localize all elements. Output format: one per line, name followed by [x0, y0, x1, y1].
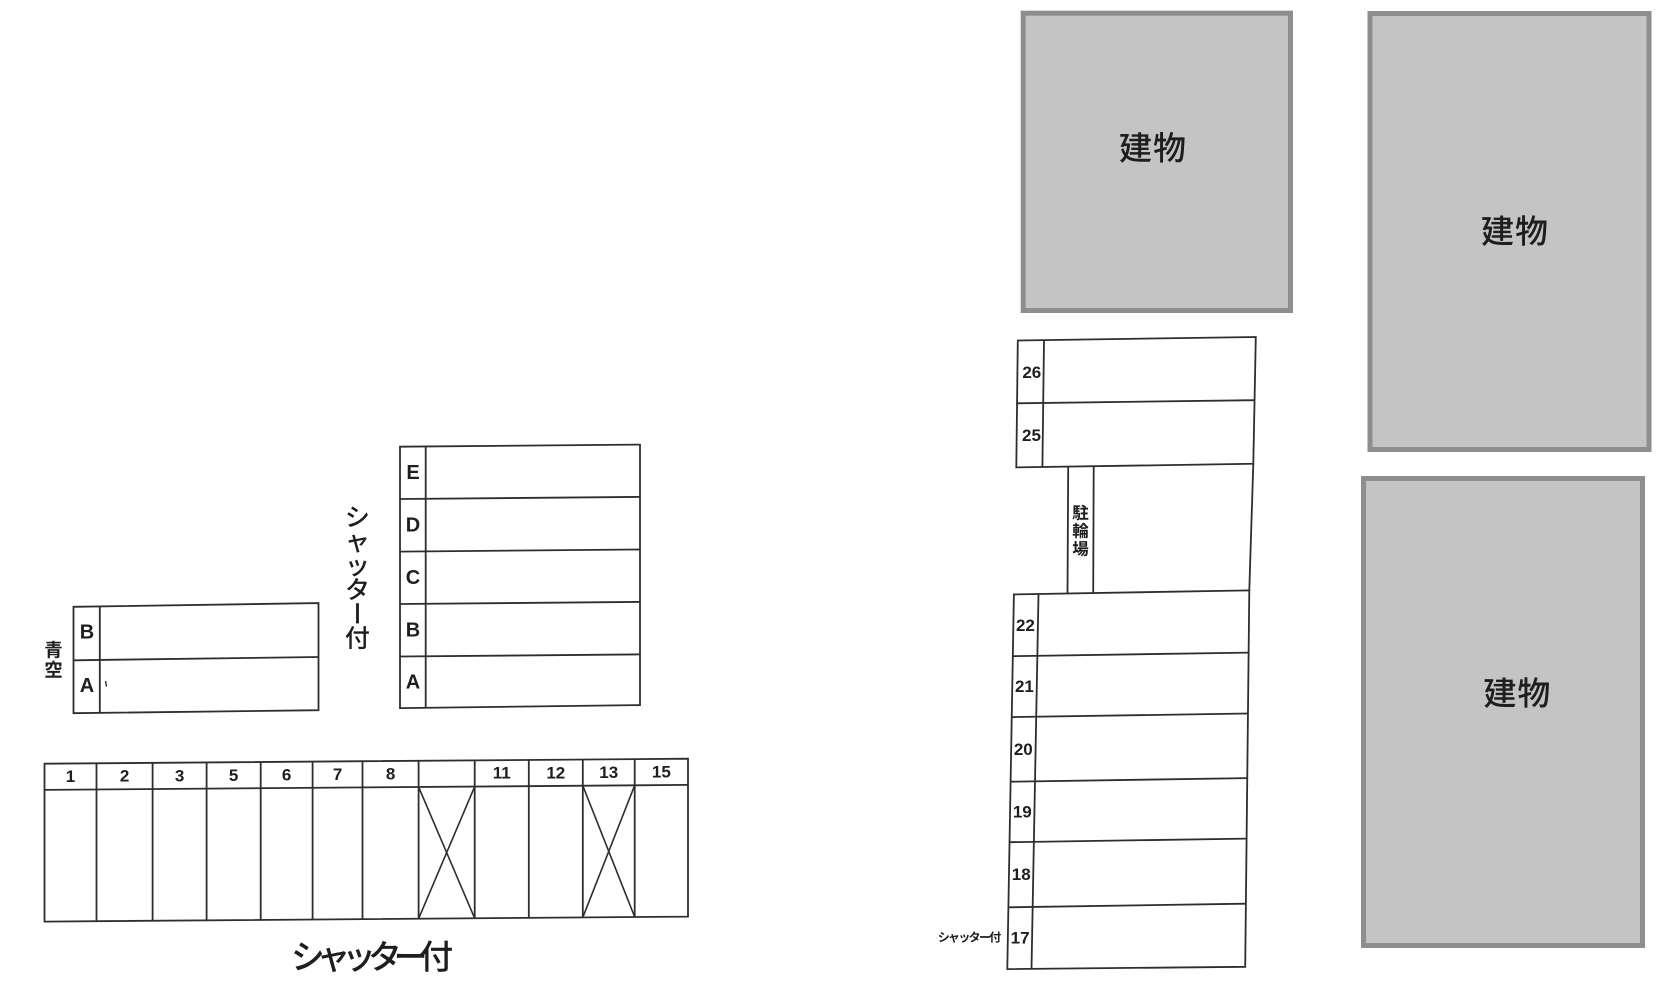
svg-text:3: 3 [175, 766, 184, 785]
svg-text:A: A [406, 672, 420, 694]
svg-text:7: 7 [333, 765, 342, 784]
svg-text:E: E [406, 462, 419, 484]
svg-text:A: A [80, 675, 94, 697]
svg-text:25: 25 [1022, 426, 1041, 445]
svg-text:26: 26 [1022, 363, 1041, 382]
svg-text:12: 12 [546, 763, 565, 782]
svg-text:20: 20 [1014, 740, 1033, 759]
svg-text:17: 17 [1011, 929, 1030, 948]
svg-text:B: B [406, 620, 420, 642]
svg-text:21: 21 [1015, 677, 1034, 696]
svg-text:5: 5 [229, 766, 238, 785]
svg-text:C: C [406, 567, 420, 589]
svg-text:6: 6 [282, 765, 291, 784]
svg-text:D: D [406, 515, 420, 537]
svg-text:19: 19 [1013, 803, 1032, 822]
svg-text:11: 11 [493, 764, 511, 783]
svg-text:B: B [80, 622, 94, 644]
svg-text:22: 22 [1016, 616, 1035, 635]
svg-text:18: 18 [1012, 865, 1031, 884]
svg-text:15: 15 [652, 763, 671, 782]
svg-text:13: 13 [599, 763, 618, 782]
svg-text:1: 1 [66, 767, 75, 786]
svg-text:8: 8 [386, 765, 395, 784]
svg-text:2: 2 [120, 767, 129, 786]
